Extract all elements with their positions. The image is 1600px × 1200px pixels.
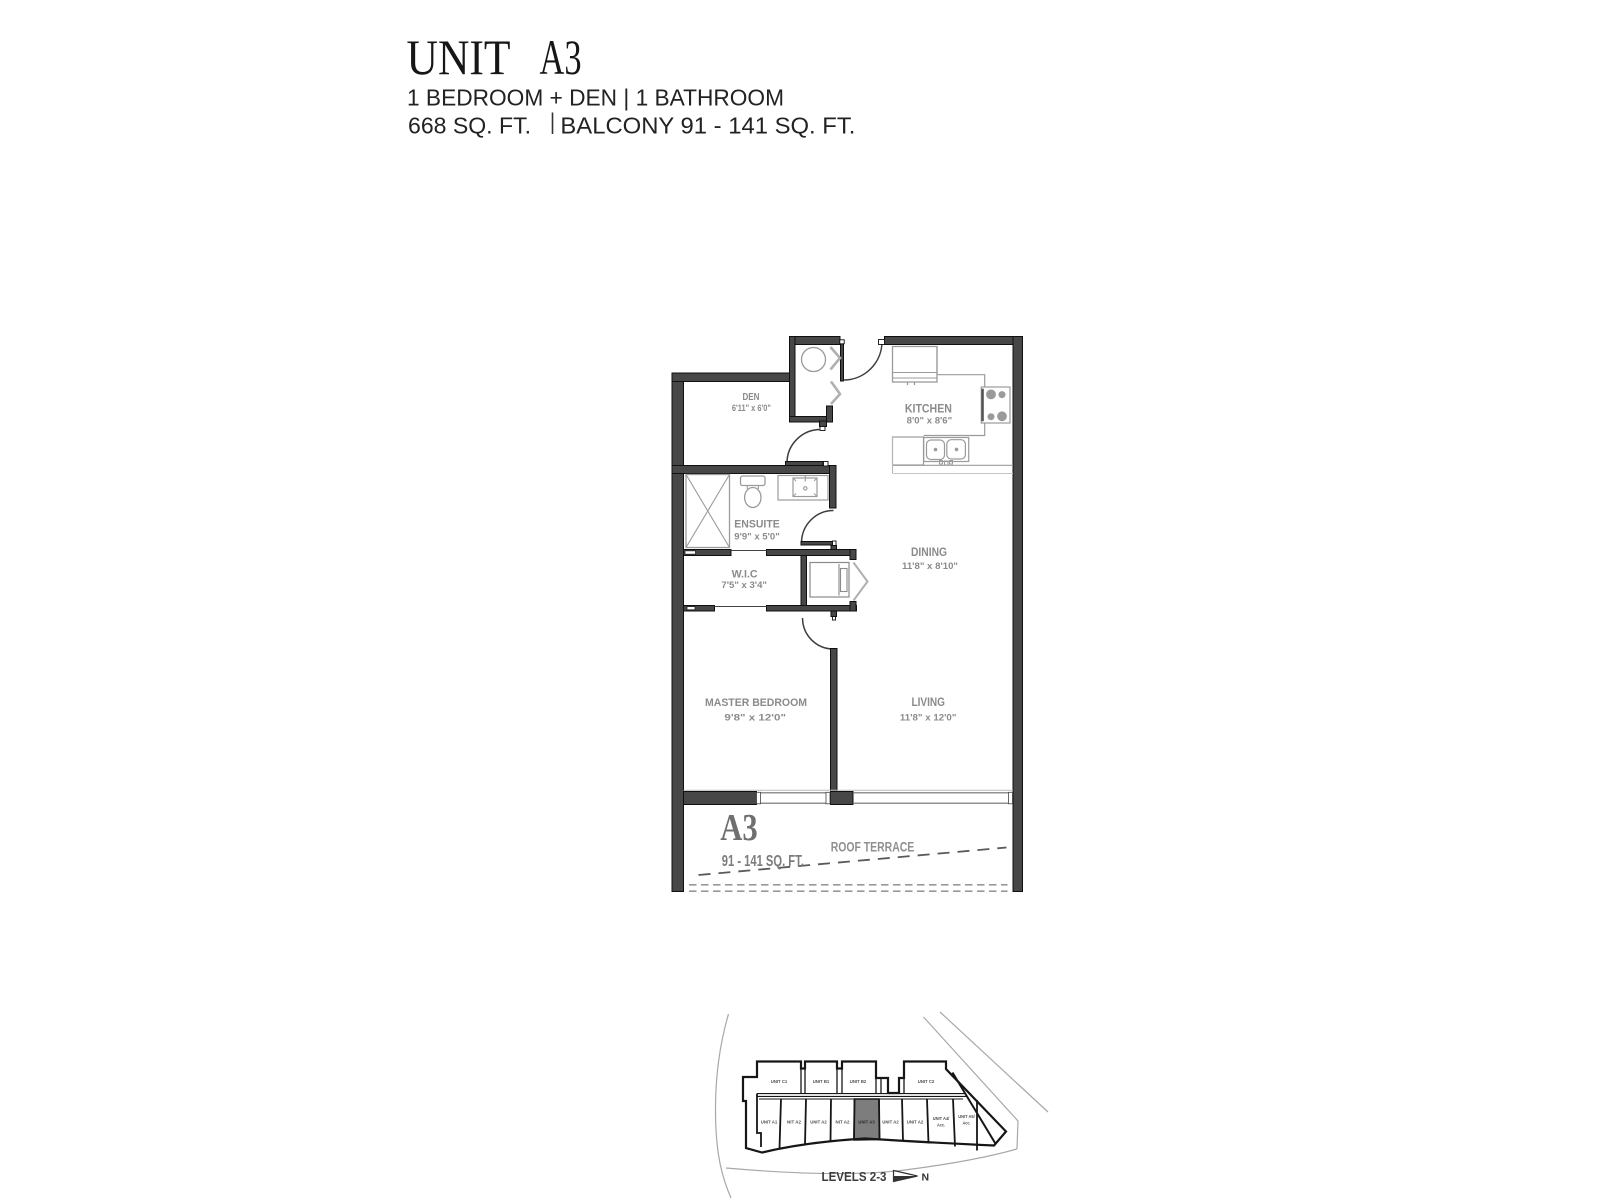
svg-text:UNIT B2: UNIT B2 bbox=[850, 1079, 867, 1085]
svg-text:W.I.C: W.I.C bbox=[732, 568, 758, 580]
svg-text:DINING: DINING bbox=[911, 547, 947, 559]
svg-text:UNIT C1: UNIT C1 bbox=[771, 1079, 788, 1085]
svg-text:UNIT A2: UNIT A2 bbox=[907, 1120, 924, 1126]
svg-text:UNIT A2: UNIT A2 bbox=[882, 1120, 899, 1126]
svg-text:UNIT A5/: UNIT A5/ bbox=[958, 1114, 975, 1120]
svg-text:KITCHEN: KITCHEN bbox=[905, 403, 952, 415]
svg-text:N: N bbox=[922, 1171, 930, 1183]
svg-text:1 BEDROOM + DEN | 1 BATHROOM: 1 BEDROOM + DEN | 1 BATHROOM bbox=[407, 85, 784, 111]
svg-text:Acc.: Acc. bbox=[937, 1123, 945, 1129]
svg-text:7'5" x 3'4": 7'5" x 3'4" bbox=[721, 580, 767, 591]
svg-text:LEVELS 2-3: LEVELS 2-3 bbox=[822, 1169, 887, 1184]
svg-text:UNIT: UNIT bbox=[407, 29, 511, 85]
svg-text:MASTER BEDROOM: MASTER BEDROOM bbox=[705, 697, 807, 709]
svg-text:DEN: DEN bbox=[743, 392, 760, 403]
svg-text:6'11" x 6'0": 6'11" x 6'0" bbox=[732, 403, 771, 414]
svg-text:BALCONY 91 - 141 SQ. FT.: BALCONY 91 - 141 SQ. FT. bbox=[560, 112, 855, 138]
svg-text:NIT A2: NIT A2 bbox=[836, 1120, 850, 1126]
svg-text:668 SQ. FT.: 668 SQ. FT. bbox=[408, 112, 531, 138]
svg-text:11'8" x 8'10": 11'8" x 8'10" bbox=[902, 561, 958, 572]
svg-text:8'0" x 8'6": 8'0" x 8'6" bbox=[907, 416, 953, 427]
svg-text:9'8" x 12'0": 9'8" x 12'0" bbox=[724, 713, 786, 724]
svg-text:LIVING: LIVING bbox=[911, 697, 945, 709]
svg-text:NIT A2: NIT A2 bbox=[787, 1120, 801, 1126]
svg-text:9'9" x 5'0": 9'9" x 5'0" bbox=[734, 532, 780, 543]
svg-text:91 - 141 SQ. FT.: 91 - 141 SQ. FT. bbox=[722, 853, 804, 870]
svg-text:UNIT A1: UNIT A1 bbox=[761, 1120, 778, 1126]
svg-text:ENSUITE: ENSUITE bbox=[734, 519, 780, 531]
svg-text:A3: A3 bbox=[720, 807, 758, 849]
svg-text:UNIT A2: UNIT A2 bbox=[810, 1120, 827, 1126]
svg-text:Acc.: Acc. bbox=[963, 1121, 971, 1127]
svg-text:ROOF TERRACE: ROOF TERRACE bbox=[831, 840, 915, 855]
svg-text:UNIT C2: UNIT C2 bbox=[918, 1079, 935, 1085]
svg-text:A3: A3 bbox=[540, 29, 582, 85]
svg-text:UNIT B1: UNIT B1 bbox=[813, 1079, 830, 1085]
svg-text:11'8" x 12'0": 11'8" x 12'0" bbox=[900, 713, 957, 724]
svg-text:UNIT A4/: UNIT A4/ bbox=[933, 1116, 950, 1122]
svg-text:UNIT A3: UNIT A3 bbox=[858, 1120, 875, 1126]
